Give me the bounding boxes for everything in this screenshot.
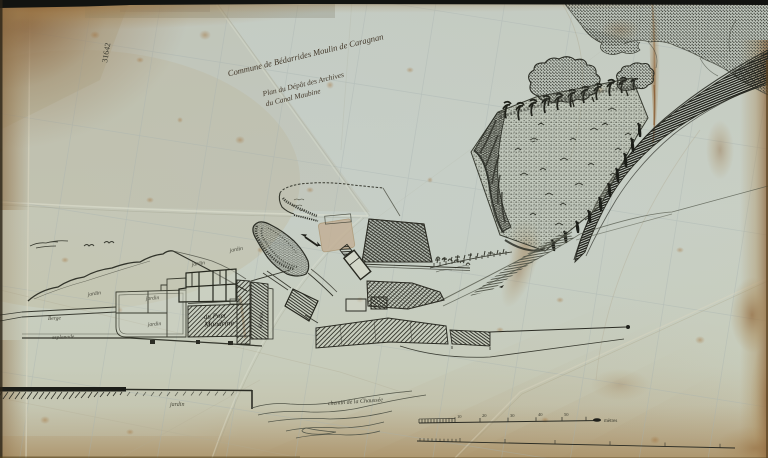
svg-text:jardin: jardin [147,321,162,328]
svg-text:40: 40 [538,412,543,417]
svg-text:esplanade: esplanade [52,334,75,341]
svg-text:Berge: Berge [48,316,62,322]
svg-text:20: 20 [482,413,487,418]
svg-text:30: 30 [510,413,515,418]
svg-text:50: 50 [564,412,569,417]
svg-text:écuries: écuries [258,312,265,328]
svg-text:jardin: jardin [169,402,184,408]
svg-text:jardin: jardin [145,295,160,302]
svg-text:10: 10 [457,414,462,419]
svg-text:Mandrine: Mandrine [203,318,235,329]
svg-text:mètres: mètres [604,419,617,424]
